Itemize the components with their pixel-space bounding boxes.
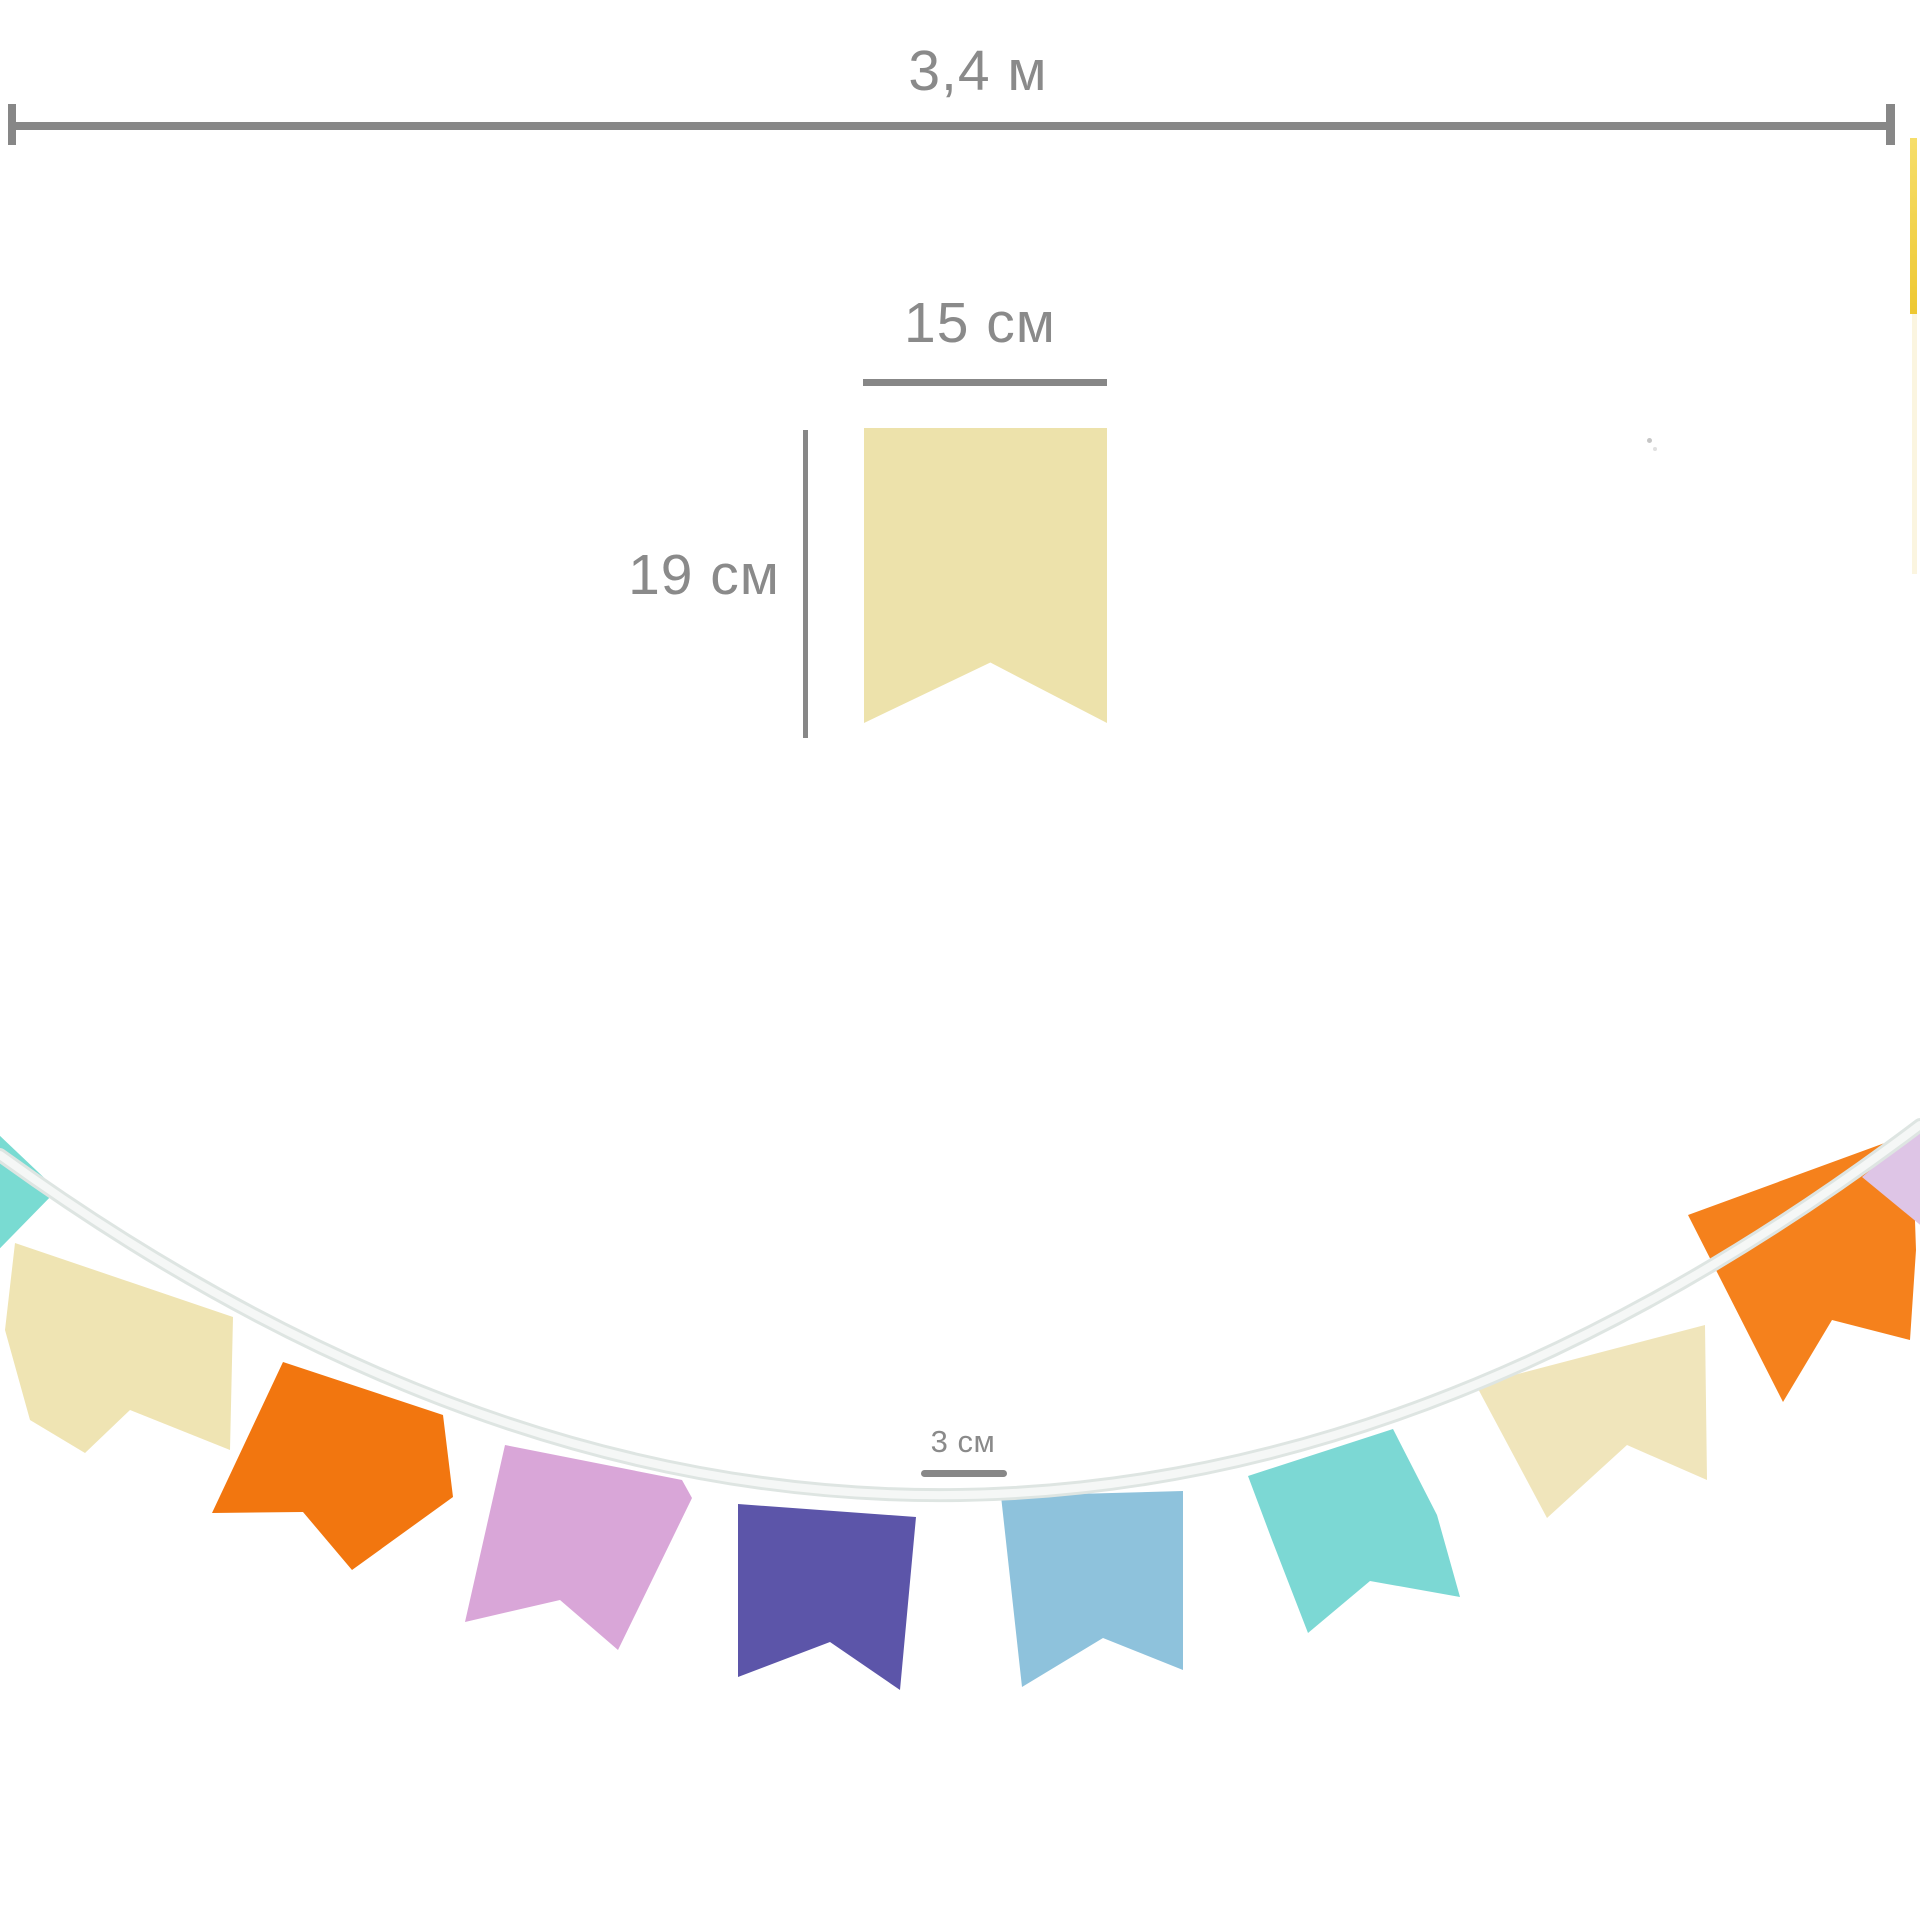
product-dimensions-image: 3,4 м 15 см 19 см 3 см bbox=[0, 0, 1920, 1920]
garland-pink-lilac-flag bbox=[465, 1445, 692, 1650]
edge-flag-fragment-faint bbox=[1912, 314, 1917, 574]
garland-aqua-flag bbox=[1248, 1429, 1460, 1633]
garland-violet-flag bbox=[738, 1504, 916, 1690]
garland-cream-flag-1 bbox=[5, 1243, 233, 1453]
garland-photo bbox=[0, 0, 1920, 1920]
artifact-dot bbox=[1647, 438, 1652, 443]
garland-cream-flag-2 bbox=[1476, 1325, 1707, 1518]
garland-light-blue-flag bbox=[1001, 1491, 1183, 1687]
artifact-dot bbox=[1653, 447, 1657, 451]
garland-flags bbox=[0, 1060, 1920, 1690]
edge-flag-fragment bbox=[1910, 138, 1917, 314]
